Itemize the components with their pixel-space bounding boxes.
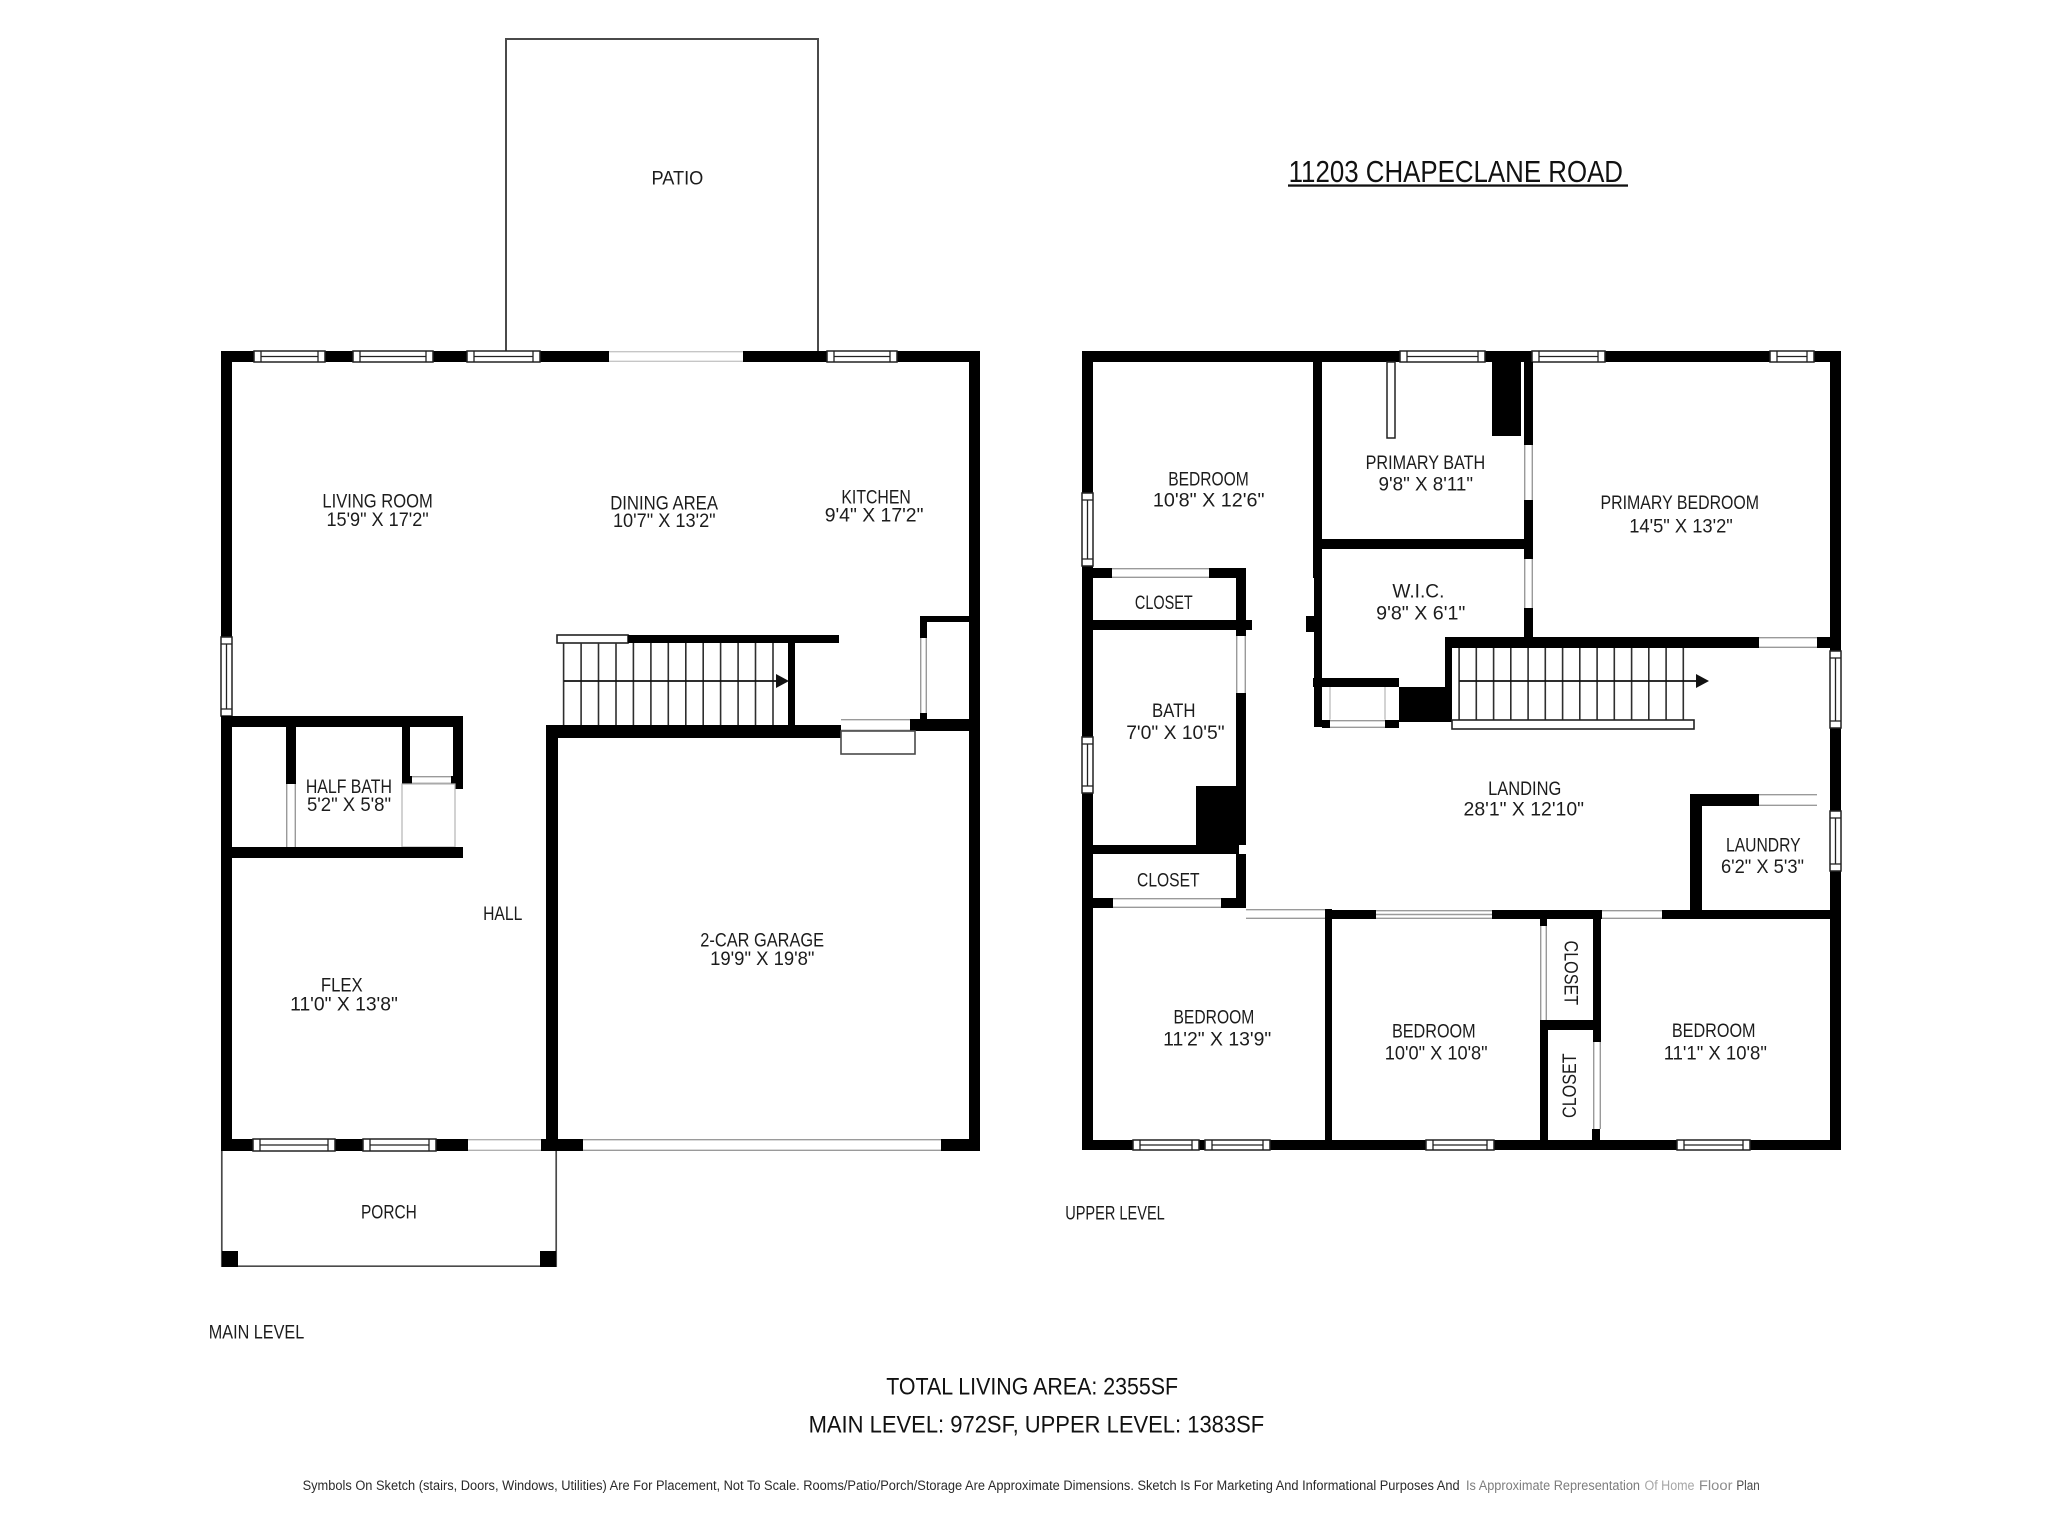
svg-text:BEDROOM: BEDROOM xyxy=(1174,1006,1255,1028)
svg-text:MAIN LEVEL: 972SF, UPPER LEVEL: MAIN LEVEL: 972SF, UPPER LEVEL: 1383SF xyxy=(809,1411,1265,1438)
svg-text:Of Home: Of Home xyxy=(1645,1478,1695,1494)
svg-text:BEDROOM: BEDROOM xyxy=(1672,1020,1756,1042)
svg-text:CLOSET: CLOSET xyxy=(1559,1053,1581,1118)
svg-text:UPPER LEVEL: UPPER LEVEL xyxy=(1065,1203,1165,1225)
svg-text:28'1" X 12'10": 28'1" X 12'10" xyxy=(1464,798,1585,820)
svg-text:CLOSET: CLOSET xyxy=(1137,870,1200,892)
svg-text:15'9" X 17'2": 15'9" X 17'2" xyxy=(326,509,428,531)
svg-text:CLOSET: CLOSET xyxy=(1135,592,1193,614)
svg-text:9'4" X 17'2": 9'4" X 17'2" xyxy=(825,505,924,527)
svg-text:HALL: HALL xyxy=(483,903,522,925)
svg-text:LANDING: LANDING xyxy=(1488,778,1561,800)
svg-text:6'2" X 5'3": 6'2" X 5'3" xyxy=(1721,856,1804,878)
svg-text:Symbols On Sketch (stairs, Doo: Symbols On Sketch (stairs, Doors, Window… xyxy=(303,1478,1460,1494)
svg-text:11'2" X 13'9": 11'2" X 13'9" xyxy=(1163,1029,1271,1051)
svg-text:W.I.C.: W.I.C. xyxy=(1392,581,1444,603)
svg-text:9'8" X 6'1": 9'8" X 6'1" xyxy=(1376,602,1465,624)
svg-text:Floor: Floor xyxy=(1699,1478,1733,1494)
svg-text:TOTAL LIVING AREA: 2355SF: TOTAL LIVING AREA: 2355SF xyxy=(886,1374,1178,1401)
svg-text:11'0" X 13'8": 11'0" X 13'8" xyxy=(290,993,398,1015)
svg-text:PORCH: PORCH xyxy=(361,1202,417,1224)
svg-text:PATIO: PATIO xyxy=(651,167,703,189)
svg-text:10'7" X 13'2": 10'7" X 13'2" xyxy=(613,510,716,532)
svg-text:9'8" X 8'11": 9'8" X 8'11" xyxy=(1379,473,1474,495)
svg-text:CLOSET: CLOSET xyxy=(1559,941,1581,1006)
svg-text:14'5" X 13'2": 14'5" X 13'2" xyxy=(1629,516,1733,538)
svg-text:Is Approximate Representation: Is Approximate Representation xyxy=(1466,1478,1640,1494)
svg-text:11'1" X 10'8": 11'1" X 10'8" xyxy=(1664,1042,1767,1064)
svg-text:BEDROOM: BEDROOM xyxy=(1168,469,1249,491)
svg-text:19'9" X 19'8": 19'9" X 19'8" xyxy=(710,948,814,970)
svg-text:10'8" X 12'6": 10'8" X 12'6" xyxy=(1153,489,1265,511)
svg-text:5'2" X 5'8": 5'2" X 5'8" xyxy=(307,794,391,816)
svg-text:PRIMARY BEDROOM: PRIMARY BEDROOM xyxy=(1601,492,1760,514)
svg-text:10'0" X 10'8": 10'0" X 10'8" xyxy=(1385,1043,1488,1065)
svg-text:7'0" X 10'5": 7'0" X 10'5" xyxy=(1126,722,1224,744)
svg-text:BATH: BATH xyxy=(1152,700,1196,722)
svg-text:LAUNDRY: LAUNDRY xyxy=(1726,835,1801,857)
svg-text:Plan: Plan xyxy=(1736,1478,1759,1494)
svg-text:PRIMARY BATH: PRIMARY BATH xyxy=(1366,452,1486,474)
svg-text:MAIN LEVEL: MAIN LEVEL xyxy=(209,1322,305,1344)
svg-text:11203 CHAPECLANE ROAD: 11203 CHAPECLANE ROAD xyxy=(1289,154,1623,189)
svg-text:BEDROOM: BEDROOM xyxy=(1392,1020,1476,1042)
